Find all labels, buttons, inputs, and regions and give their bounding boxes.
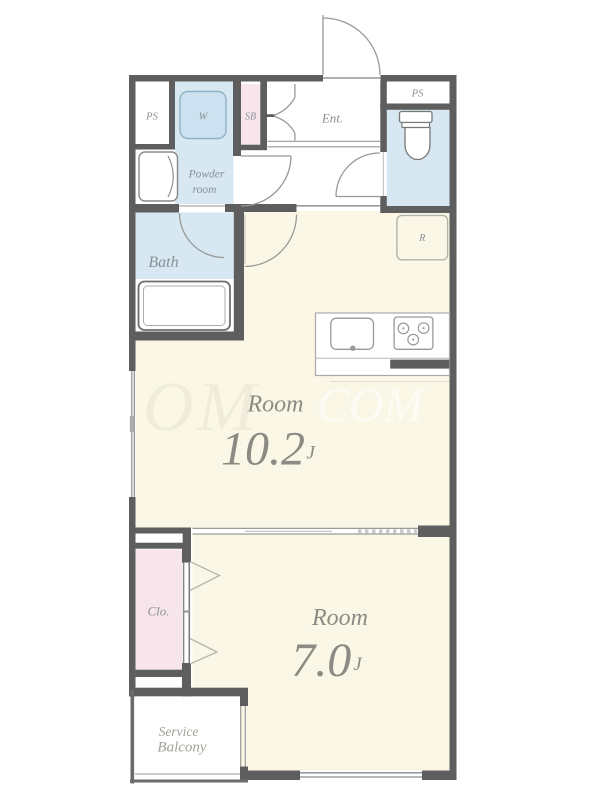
svg-text:Ent.: Ent. (321, 111, 343, 126)
svg-text:Room: Room (247, 392, 304, 418)
svg-text:PS: PS (411, 88, 424, 99)
svg-text:W: W (199, 112, 209, 123)
svg-text:Room: Room (311, 605, 368, 631)
svg-text:PS: PS (145, 112, 158, 123)
svg-text:room: room (193, 184, 217, 196)
svg-text:R: R (418, 233, 425, 244)
svg-text:Powder: Powder (188, 169, 225, 181)
svg-text:Bath: Bath (148, 254, 178, 271)
svg-text:Balcony: Balcony (157, 740, 206, 756)
svg-text:Clo.: Clo. (147, 604, 169, 619)
svg-text:COM: COM (317, 379, 427, 432)
svg-text:10.2J: 10.2J (221, 423, 317, 476)
svg-text:SB: SB (245, 112, 256, 123)
svg-text:Service: Service (159, 724, 199, 739)
